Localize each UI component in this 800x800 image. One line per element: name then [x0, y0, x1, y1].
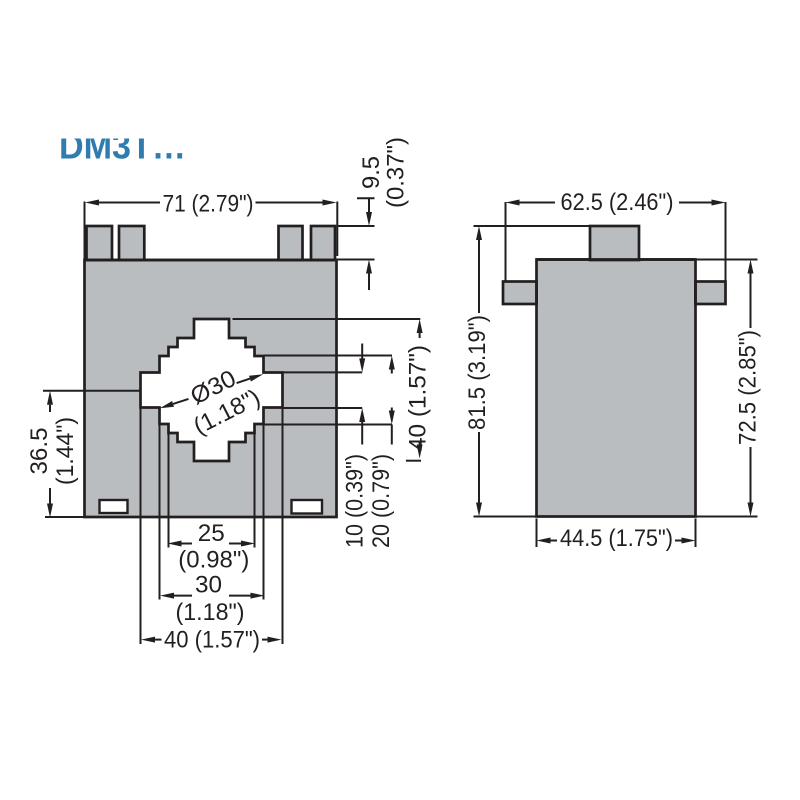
svg-text:9.5: 9.5 [358, 156, 385, 189]
svg-text:(1.18"): (1.18") [176, 599, 245, 626]
svg-text:62.5 (2.46"): 62.5 (2.46") [561, 189, 674, 216]
svg-text:72.5 (2.85"): 72.5 (2.85") [735, 330, 762, 445]
svg-text:40 (1.57"): 40 (1.57") [164, 627, 260, 654]
svg-text:71 (2.79"): 71 (2.79") [163, 191, 254, 218]
svg-text:40 (1.57"): 40 (1.57") [405, 345, 432, 451]
svg-text:25: 25 [198, 520, 225, 547]
svg-text:20 (0.79"): 20 (0.79") [368, 454, 395, 548]
svg-text:10 (0.39"): 10 (0.39") [342, 454, 369, 548]
svg-text:30: 30 [195, 572, 222, 599]
svg-text:81.5 (3.19"): 81.5 (3.19") [464, 315, 491, 430]
svg-text:44.5 (1.75"): 44.5 (1.75") [560, 525, 673, 552]
svg-text:(0.98"): (0.98") [178, 547, 249, 574]
svg-text:(1.44"): (1.44") [52, 417, 79, 485]
svg-text:(0.37"): (0.37") [383, 137, 410, 208]
svg-text:36.5: 36.5 [26, 428, 53, 475]
